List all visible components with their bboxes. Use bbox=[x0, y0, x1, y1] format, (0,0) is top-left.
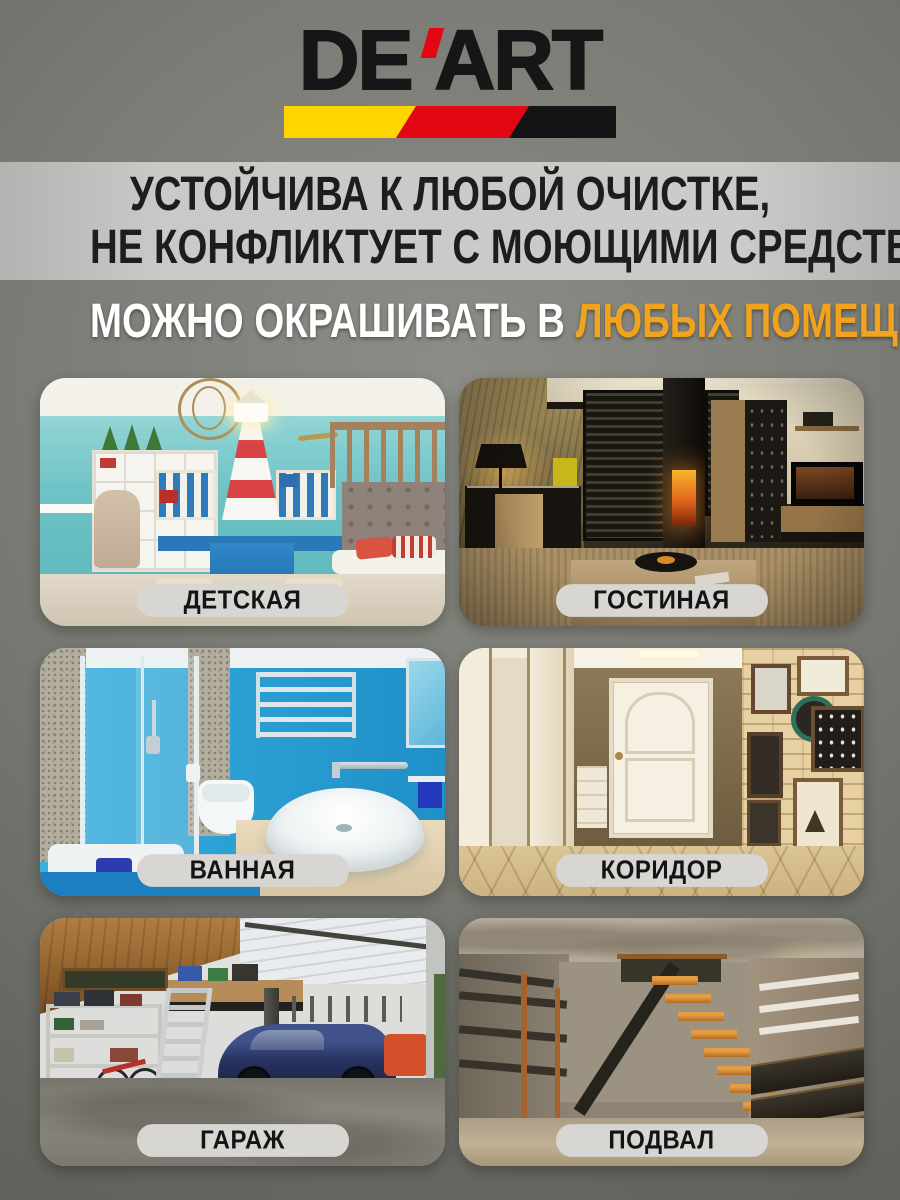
stair-step bbox=[691, 1030, 737, 1039]
stair-step bbox=[665, 994, 711, 1003]
pillow bbox=[355, 536, 393, 560]
room-label-garage: ГАРАЖ bbox=[137, 1124, 349, 1157]
picture-frame bbox=[751, 664, 791, 714]
rooms-grid: ДЕТСКАЯ bbox=[40, 378, 864, 1166]
brand-name-suffix: ART bbox=[435, 13, 602, 107]
brand-logo: DEART bbox=[0, 20, 900, 138]
red-equipment bbox=[384, 1034, 428, 1076]
claims-line-2: НЕ КОНФЛИКТУЕТ С МОЮЩИМИ СРЕДСТВАМИ bbox=[90, 221, 810, 274]
clutter-item bbox=[54, 1048, 74, 1062]
picture-frame bbox=[797, 656, 849, 696]
promo-banner: DEART УСТОЙЧИВА К ЛЮБОЙ ОЧИСТКЕ, НЕ КОНФ… bbox=[0, 0, 900, 1200]
globe-chandelier-inner bbox=[192, 386, 226, 430]
mirror bbox=[406, 658, 445, 748]
room-card-garage: ГАРАЖ bbox=[40, 918, 445, 1166]
storage-bin bbox=[178, 966, 202, 981]
stripe-red-segment bbox=[396, 106, 529, 138]
towel-radiator bbox=[256, 672, 356, 738]
shelf-post bbox=[555, 988, 560, 1118]
storage-bag bbox=[232, 964, 258, 981]
door-handle bbox=[615, 752, 623, 760]
clerestory-window bbox=[62, 968, 168, 991]
sink-drain bbox=[336, 824, 352, 832]
picture-frame bbox=[747, 800, 781, 846]
clutter-item bbox=[54, 1018, 74, 1030]
heading-orange-part: ЛЮБЫХ ПОМЕЩЕНИЯХ bbox=[576, 295, 900, 348]
mirror-tint bbox=[492, 658, 527, 878]
stair-step bbox=[652, 976, 698, 985]
claims-line-1: УСТОЙЧИВА К ЛЮБОЙ ОЧИСТКЕ, bbox=[90, 168, 810, 221]
lighthouse-lantern bbox=[234, 402, 268, 422]
bunk-bed-rail bbox=[330, 422, 445, 488]
picture-frame bbox=[811, 706, 864, 772]
chair bbox=[94, 490, 140, 568]
clutter-item bbox=[84, 990, 114, 1006]
ceiling-light bbox=[639, 651, 699, 657]
clutter-item bbox=[80, 1020, 104, 1030]
heading-white-part: МОЖНО ОКРАШИВАТЬ В bbox=[90, 295, 565, 348]
striped-pillow bbox=[392, 536, 436, 558]
shower-head bbox=[146, 736, 160, 754]
brand-stripe bbox=[284, 106, 616, 138]
room-label-bathroom: ВАННАЯ bbox=[137, 854, 349, 887]
drawer-cabinet bbox=[577, 766, 607, 828]
go-sign bbox=[160, 490, 178, 503]
wall-faucet bbox=[332, 762, 408, 769]
clutter-item bbox=[110, 1048, 138, 1062]
room-label-basement: ПОДВАЛ bbox=[556, 1124, 768, 1157]
stripe-black-segment bbox=[509, 106, 616, 138]
hanging-tools bbox=[292, 996, 402, 1022]
brand-name-prefix: DE bbox=[299, 13, 412, 107]
room-label-hallway: КОРИДОР bbox=[556, 854, 768, 887]
room-card-living: ГОСТИНАЯ bbox=[459, 378, 864, 626]
room-label-living: ГОСТИНАЯ bbox=[556, 584, 768, 617]
toy bbox=[100, 458, 116, 468]
door-panel bbox=[625, 758, 695, 822]
stair-step bbox=[704, 1048, 750, 1057]
room-card-bathroom: ВАННАЯ bbox=[40, 648, 445, 896]
wood-beam bbox=[617, 954, 727, 959]
room-card-hallway: КОРИДОР bbox=[459, 648, 864, 896]
car-window bbox=[250, 1030, 324, 1050]
picture-frame bbox=[747, 732, 783, 798]
stair-step bbox=[678, 1012, 724, 1021]
room-label-kids: ДЕТСКАЯ bbox=[137, 584, 349, 617]
shelf-post bbox=[521, 974, 527, 1134]
clutter-item bbox=[54, 992, 80, 1006]
claims-banner: УСТОЙЧИВА К ЛЮБОЙ ОЧИСТКЕ, НЕ КОНФЛИКТУЕ… bbox=[0, 162, 900, 280]
door-panel bbox=[625, 692, 695, 754]
storage-bin bbox=[208, 968, 228, 981]
blue-towel bbox=[418, 782, 442, 808]
toilet-lid bbox=[202, 784, 250, 802]
toilet-paper bbox=[186, 764, 200, 782]
stripe-yellow-segment bbox=[284, 106, 416, 138]
section-heading: МОЖНО ОКРАШИВАТЬ В ЛЮБЫХ ПОМЕЩЕНИЯХ bbox=[90, 296, 810, 348]
go-sign bbox=[280, 474, 298, 487]
room-card-kids: ДЕТСКАЯ bbox=[40, 378, 445, 626]
brand-name: DEART bbox=[0, 20, 900, 100]
clutter-item bbox=[120, 994, 142, 1006]
shower-glass-panel bbox=[80, 656, 144, 874]
picture-frame bbox=[793, 778, 843, 854]
room-card-basement: ПОДВАЛ bbox=[459, 918, 864, 1166]
faucet-spout bbox=[332, 762, 340, 778]
